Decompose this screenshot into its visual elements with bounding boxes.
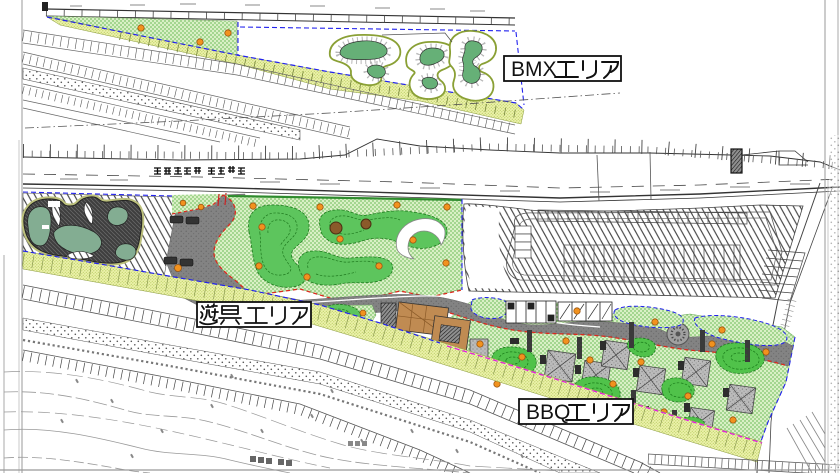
svg-text:BMX: BMX (511, 58, 557, 81)
svg-text:BBQ: BBQ (526, 401, 570, 424)
